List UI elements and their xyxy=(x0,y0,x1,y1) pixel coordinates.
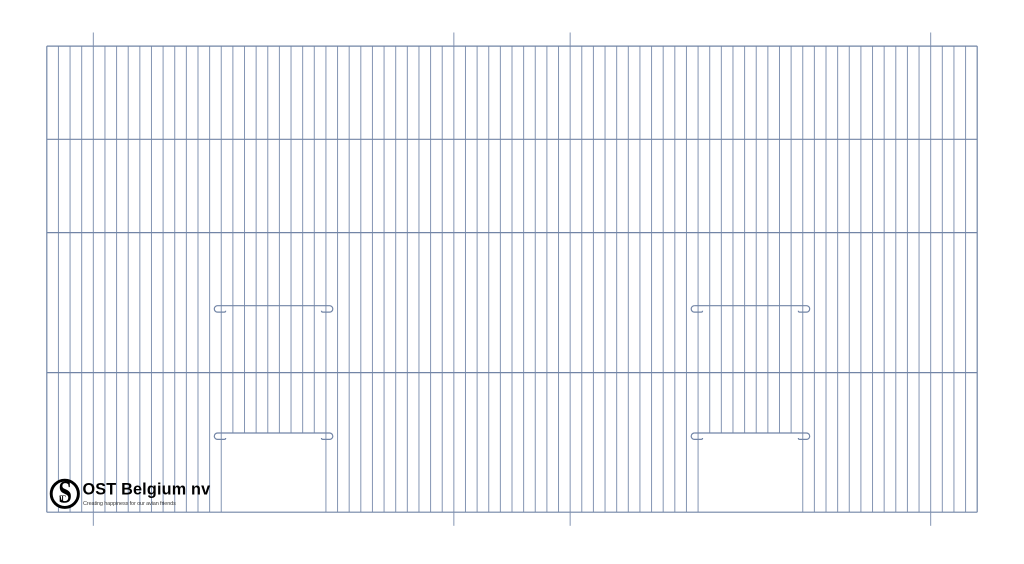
svg-text:Creating happiness for our avi: Creating happiness for our avian friends xyxy=(83,501,176,507)
svg-text:T: T xyxy=(59,494,66,505)
svg-text:OST Belgium nv: OST Belgium nv xyxy=(83,480,211,498)
